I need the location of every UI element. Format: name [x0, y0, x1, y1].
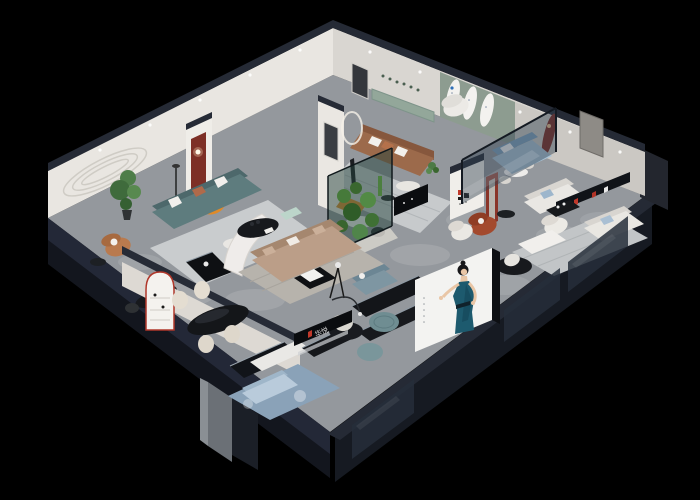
showroom-image: 华悦 — [0, 0, 700, 500]
tall-plant — [110, 180, 130, 200]
tall-plant — [120, 198, 132, 210]
screen-glyph — [403, 202, 405, 204]
table-deco-white — [557, 206, 560, 209]
poster-woman-hand — [439, 296, 443, 300]
screen-glyph — [411, 198, 413, 200]
armchair-pillow — [111, 239, 118, 246]
downlight — [198, 98, 201, 101]
poster-text-dash — [423, 297, 425, 299]
poster-text-dash — [423, 315, 425, 317]
framed-art-panel — [324, 122, 338, 161]
wall-lettering-dot — [389, 78, 392, 81]
table-bottle — [256, 220, 260, 224]
sofa-pillow-white — [359, 273, 365, 279]
downlight — [298, 48, 301, 51]
atrium-plant — [365, 213, 379, 227]
cream-dining-chair — [224, 325, 240, 343]
downlight — [418, 70, 421, 73]
wall-lettering-dot — [403, 83, 406, 86]
downlight — [568, 130, 571, 133]
cream-dining-chair — [198, 335, 214, 353]
poster-woman-face — [461, 269, 467, 275]
downlight — [518, 110, 521, 113]
rug-pattern — [243, 399, 253, 409]
arch-logo-text-dash — [468, 99, 470, 101]
showroom-render: 华悦 — [0, 0, 700, 500]
corner-pillar-gray-face — [200, 378, 208, 446]
shelf-deco — [162, 306, 165, 309]
table-bottle — [250, 222, 254, 226]
cream-dining-chair — [172, 291, 188, 309]
armchair-pillow — [478, 218, 484, 224]
atrium-plant — [343, 203, 361, 221]
potted-plant-small — [433, 167, 439, 173]
potted-plant-small — [426, 168, 432, 174]
atrium-plant — [360, 192, 376, 208]
poster-woman-hand — [471, 301, 475, 305]
poster-woman-bun — [461, 261, 466, 266]
arch-logo-text-dash — [485, 106, 487, 108]
downlight — [148, 123, 151, 126]
atrium-cactus — [378, 176, 382, 196]
wall-lettering-dot — [410, 86, 413, 89]
arc-lamp-head — [358, 312, 362, 316]
floor-light-pool — [390, 244, 450, 266]
poster-text-dash — [423, 309, 425, 311]
downlight — [248, 73, 251, 76]
poster-panel-edge — [492, 248, 500, 324]
rug-pattern — [294, 390, 306, 402]
poster-text-dash — [423, 321, 425, 323]
side-table-black — [90, 258, 106, 266]
arch-logo-mark — [450, 86, 453, 89]
arched-shelf — [146, 272, 174, 330]
downlight — [618, 150, 621, 153]
shelf-deco — [154, 294, 157, 297]
downlight — [98, 148, 101, 151]
poster-text-dash — [423, 303, 425, 305]
wall-lettering-dot — [417, 89, 420, 92]
table-deco-white — [563, 203, 566, 206]
sideboard-bowl — [204, 262, 209, 267]
floor-lamp-shade — [172, 164, 180, 168]
wall-lettering-dot — [382, 75, 385, 78]
small-black-table — [497, 210, 515, 218]
downlight — [368, 50, 371, 53]
wall-lettering-dot — [396, 81, 399, 84]
tall-plant — [127, 185, 141, 199]
cream-dining-chair — [194, 281, 210, 299]
atrium-plant — [350, 182, 362, 194]
teal-pouf — [357, 343, 383, 361]
tripod-lamp-head — [335, 262, 341, 268]
arch-logo-text-dash — [451, 92, 453, 94]
cafe-chair — [125, 303, 139, 313]
wall-lamp — [196, 150, 201, 155]
atrium-plant — [337, 189, 351, 203]
logo-text-dash — [459, 203, 461, 205]
